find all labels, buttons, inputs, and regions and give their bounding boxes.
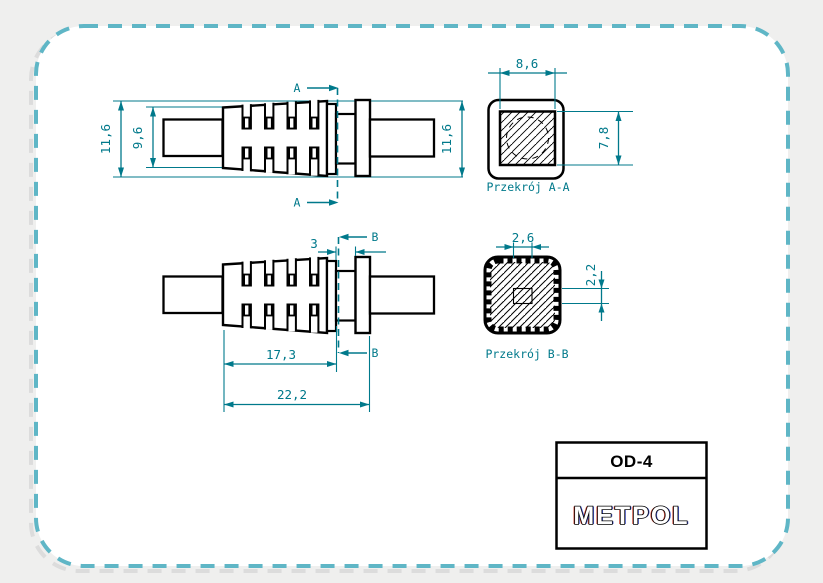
dim-label: 2,2 xyxy=(583,264,598,287)
cut-label-b-top: B xyxy=(372,230,379,244)
title-block: OD-4 METPOL METPOL METPOL xyxy=(557,443,707,549)
dim-label: 7,8 xyxy=(596,127,611,150)
dim-label: 2,6 xyxy=(512,230,535,245)
dim-label: 22,2 xyxy=(277,387,307,402)
cut-label-b-bottom: B xyxy=(372,346,379,360)
dim-label: 11,6 xyxy=(98,124,113,154)
cut-label-a-top: A xyxy=(294,81,301,95)
dim-label: 9,6 xyxy=(130,127,145,150)
drawing-page: 11,6 9,6 11,6 A A xyxy=(0,0,823,583)
section-bb-hatched-core xyxy=(490,262,555,328)
manufacturer-logo: METPOL METPOL METPOL xyxy=(572,502,691,530)
section-bb-caption: Przekrój B-B xyxy=(485,347,568,361)
dim-label: 8,6 xyxy=(516,56,539,71)
part-number: OD-4 xyxy=(610,452,653,471)
section-aa-core-hatched xyxy=(500,112,555,166)
section-aa-caption: Przekrój A-A xyxy=(486,180,569,194)
technical-drawing-canvas: 11,6 9,6 11,6 A A xyxy=(0,0,823,583)
logo-main: METPOL xyxy=(573,502,689,530)
dim-label: 11,6 xyxy=(439,124,454,154)
cut-label-a-bottom: A xyxy=(294,196,301,210)
dim-label: 3 xyxy=(310,236,318,251)
dim-label: 17,3 xyxy=(266,347,296,362)
